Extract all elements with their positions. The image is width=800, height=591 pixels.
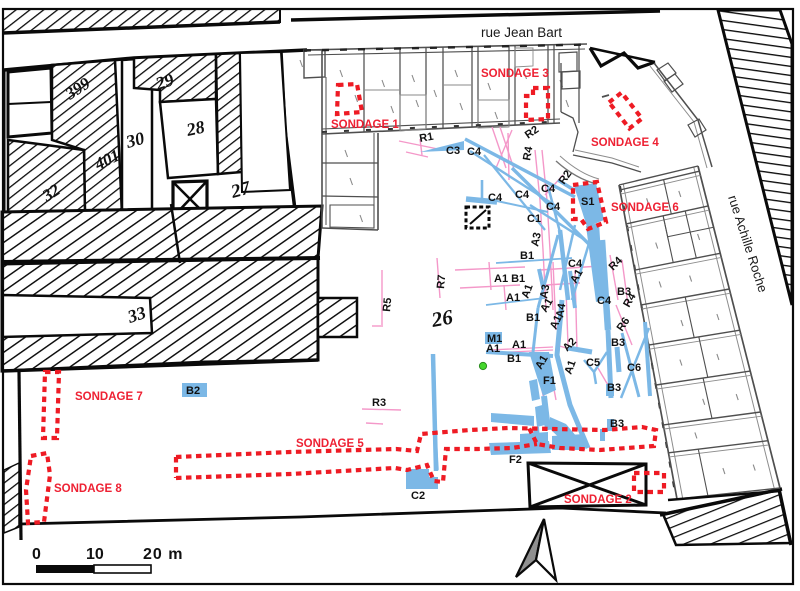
svg-text:SONDAGE 6: SONDAGE 6 — [611, 202, 679, 214]
svg-text:C6: C6 — [627, 362, 641, 374]
svg-text:B3: B3 — [607, 382, 621, 394]
svg-text:C2: C2 — [411, 490, 425, 502]
svg-text:C4: C4 — [546, 201, 561, 213]
svg-text:0: 0 — [32, 546, 41, 563]
svg-text:SONDAGE 2: SONDAGE 2 — [564, 494, 632, 506]
svg-text:F1: F1 — [543, 375, 556, 387]
svg-text:C4: C4 — [568, 258, 583, 270]
svg-text:B2: B2 — [186, 385, 200, 397]
svg-text:C4: C4 — [515, 189, 530, 201]
svg-text:C4: C4 — [597, 295, 612, 307]
svg-text:SONDAGE 3: SONDAGE 3 — [481, 68, 549, 80]
svg-text:S1: S1 — [581, 196, 594, 208]
svg-text:C1: C1 — [527, 213, 541, 225]
svg-text:M1: M1 — [487, 333, 502, 345]
svg-text:rue Jean Bart: rue Jean Bart — [481, 25, 562, 40]
svg-text:F2: F2 — [509, 454, 522, 466]
svg-text:SONDAGE 1: SONDAGE 1 — [331, 119, 399, 131]
svg-text:B3: B3 — [611, 337, 625, 349]
svg-text:R7: R7 — [435, 274, 448, 289]
svg-text:SONDAGE 5: SONDAGE 5 — [296, 438, 364, 450]
svg-text:B3: B3 — [610, 418, 624, 430]
svg-text:26: 26 — [429, 305, 455, 333]
svg-text:A1: A1 — [506, 292, 520, 304]
svg-text:SONDAGE 8: SONDAGE 8 — [54, 483, 122, 495]
svg-text:C4: C4 — [541, 183, 556, 195]
svg-text:10: 10 — [86, 546, 104, 563]
svg-text:C4: C4 — [467, 146, 482, 158]
svg-text:C5: C5 — [586, 357, 600, 369]
svg-text:B1: B1 — [507, 353, 521, 365]
svg-text:R5: R5 — [381, 297, 394, 312]
svg-text:SONDAGE 4: SONDAGE 4 — [591, 137, 659, 149]
svg-text:20 m: 20 m — [143, 546, 183, 563]
svg-text:C3: C3 — [446, 145, 460, 157]
svg-text:R3: R3 — [372, 397, 386, 409]
svg-text:C4: C4 — [488, 192, 503, 204]
svg-text:B1: B1 — [520, 250, 534, 262]
svg-text:R1: R1 — [418, 131, 434, 145]
svg-text:B1: B1 — [526, 312, 540, 324]
svg-text:A1 B1: A1 B1 — [494, 273, 525, 285]
svg-text:SONDAGE 7: SONDAGE 7 — [75, 391, 143, 403]
svg-text:A1: A1 — [512, 339, 526, 351]
